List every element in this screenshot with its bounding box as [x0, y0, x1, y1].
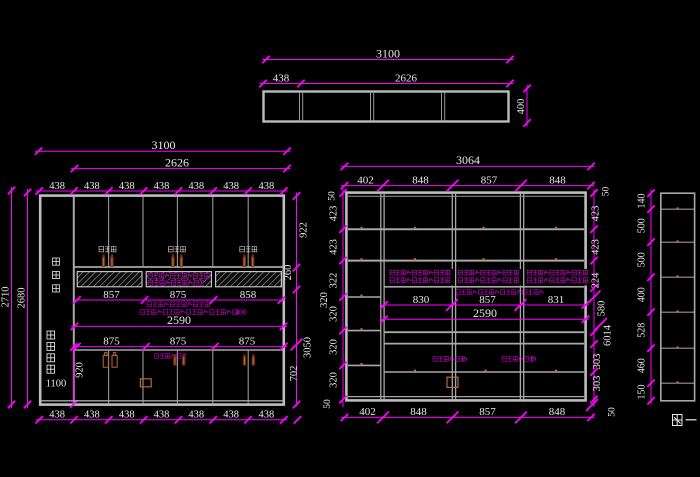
svg-text:848: 848 — [412, 174, 429, 186]
svg-text:857: 857 — [479, 406, 496, 418]
svg-text:438: 438 — [49, 181, 65, 192]
svg-text:500: 500 — [637, 218, 648, 233]
svg-text:402: 402 — [357, 174, 374, 186]
svg-text:438: 438 — [119, 181, 135, 192]
svg-text:438: 438 — [154, 181, 170, 192]
svg-text:875: 875 — [239, 335, 256, 347]
svg-text:438: 438 — [84, 410, 100, 421]
svg-text:438: 438 — [223, 410, 239, 421]
svg-text:580: 580 — [597, 301, 608, 317]
svg-text:848: 848 — [410, 406, 427, 418]
svg-text:3100: 3100 — [376, 46, 400, 60]
svg-text:19: 19 — [530, 356, 537, 363]
svg-text:438: 438 — [154, 410, 170, 421]
svg-text:303: 303 — [592, 354, 603, 370]
svg-text:400: 400 — [516, 99, 527, 115]
svg-text:858: 858 — [240, 289, 257, 301]
svg-text:2680: 2680 — [17, 288, 28, 309]
svg-text:260: 260 — [283, 265, 294, 281]
svg-text:3050: 3050 — [303, 337, 314, 358]
svg-text:848: 848 — [549, 174, 566, 186]
svg-text:50: 50 — [323, 399, 333, 409]
svg-text:423: 423 — [329, 239, 340, 255]
svg-text:3100: 3100 — [152, 138, 176, 152]
svg-text:2590: 2590 — [473, 306, 497, 320]
svg-text:528: 528 — [637, 323, 648, 338]
svg-text:875: 875 — [103, 335, 120, 347]
svg-text:920: 920 — [75, 362, 86, 378]
svg-text:402: 402 — [359, 406, 376, 418]
svg-text:438: 438 — [188, 181, 204, 192]
svg-text:438: 438 — [259, 410, 275, 421]
svg-text:400: 400 — [637, 287, 648, 302]
svg-text:857: 857 — [103, 289, 120, 301]
svg-text:848: 848 — [549, 406, 566, 418]
svg-text:438: 438 — [259, 181, 275, 192]
svg-text:875: 875 — [170, 335, 187, 347]
svg-text:423: 423 — [329, 206, 340, 222]
svg-text:2626: 2626 — [395, 72, 418, 84]
svg-text:857: 857 — [479, 294, 496, 306]
svg-text:320: 320 — [329, 372, 340, 388]
svg-text:2590: 2590 — [167, 313, 191, 327]
svg-text:423: 423 — [591, 206, 602, 222]
svg-text:19: 19 — [461, 356, 468, 363]
svg-text:438: 438 — [223, 181, 239, 192]
svg-text:423: 423 — [591, 239, 602, 255]
svg-text:320: 320 — [329, 306, 340, 322]
svg-text:224: 224 — [591, 272, 602, 289]
svg-text:702: 702 — [289, 366, 300, 382]
svg-text:438: 438 — [188, 410, 204, 421]
svg-text:140: 140 — [637, 194, 648, 209]
svg-text:303: 303 — [592, 376, 603, 392]
svg-text:438: 438 — [49, 410, 65, 421]
svg-text:322: 322 — [329, 273, 340, 289]
svg-text:460: 460 — [637, 358, 648, 373]
svg-text:50: 50 — [608, 407, 618, 417]
svg-text:50: 50 — [602, 187, 612, 197]
svg-text:400: 400 — [235, 308, 247, 317]
svg-text:857: 857 — [481, 174, 498, 186]
svg-text:2626: 2626 — [165, 155, 189, 169]
svg-text:438: 438 — [119, 410, 135, 421]
svg-text:50: 50 — [328, 191, 338, 201]
svg-text:831: 831 — [548, 294, 565, 306]
svg-text:2710: 2710 — [1, 287, 12, 308]
svg-text:438: 438 — [84, 181, 100, 192]
svg-text:3064: 3064 — [456, 153, 480, 167]
svg-text:150: 150 — [637, 385, 648, 400]
svg-text:438: 438 — [273, 72, 290, 84]
svg-text:320: 320 — [319, 292, 330, 308]
svg-text:500: 500 — [637, 252, 648, 267]
svg-text:320: 320 — [329, 339, 340, 355]
svg-text:830: 830 — [413, 294, 430, 306]
svg-text:6014: 6014 — [603, 324, 614, 346]
svg-text:922: 922 — [299, 222, 310, 238]
svg-text:1100: 1100 — [46, 379, 67, 390]
svg-text:875: 875 — [170, 289, 187, 301]
